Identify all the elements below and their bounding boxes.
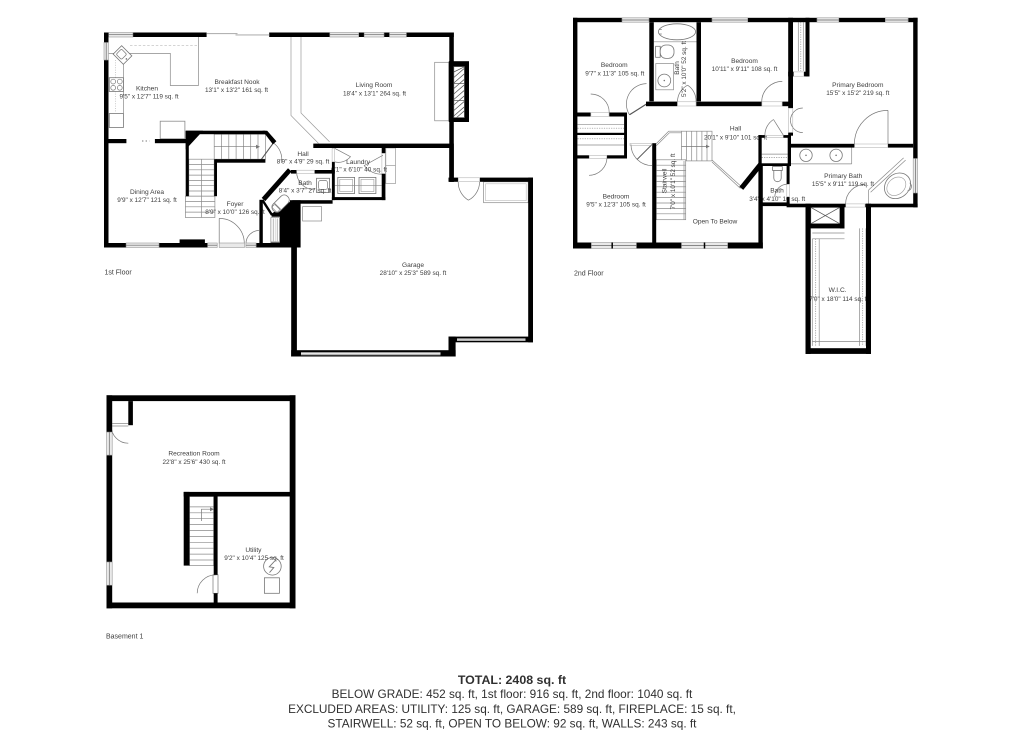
svg-text:6'1" x 6'10" 40 sq. ft: 6'1" x 6'10" 40 sq. ft: [331, 167, 387, 174]
svg-text:Bedroom: Bedroom: [731, 58, 758, 65]
svg-text:Bath: Bath: [674, 61, 681, 75]
svg-text:BELOW GRADE: 452 sq. ft, 1st f: BELOW GRADE: 452 sq. ft, 1st floor: 916 …: [332, 687, 693, 701]
svg-text:9'9" x 12'7" 121 sq. ft: 9'9" x 12'7" 121 sq. ft: [117, 197, 177, 204]
svg-text:W.I.C.: W.I.C.: [829, 287, 847, 294]
svg-text:8'9" x 10'0" 126 sq. ft: 8'9" x 10'0" 126 sq. ft: [205, 209, 265, 216]
svg-text:Foyer: Foyer: [227, 201, 245, 208]
svg-text:STAIRWELL: 52 sq. ft, OPEN TO: STAIRWELL: 52 sq. ft, OPEN TO BELOW: 92 …: [328, 716, 698, 730]
svg-text:Basement 1: Basement 1: [106, 634, 143, 641]
svg-text:Living Room: Living Room: [356, 82, 393, 89]
svg-text:20'1" x 9'10" 101 sq. ft: 20'1" x 9'10" 101 sq. ft: [704, 134, 767, 141]
svg-text:13'1" x 13'2" 161 sq. ft: 13'1" x 13'2" 161 sq. ft: [205, 87, 268, 94]
svg-text:15'5" x 9'11" 119 sq. ft: 15'5" x 9'11" 119 sq. ft: [812, 181, 874, 188]
svg-text:9'7" x 11'3" 105 sq. ft: 9'7" x 11'3" 105 sq. ft: [585, 70, 644, 77]
svg-text:Bedroom: Bedroom: [603, 193, 630, 200]
svg-text:Primary Bedroom: Primary Bedroom: [832, 82, 884, 89]
svg-text:Bedroom: Bedroom: [601, 62, 628, 69]
svg-text:8'4" x 3'7" 27 sq. ft: 8'4" x 3'7" 27 sq. ft: [279, 187, 332, 194]
svg-text:7'0" x 18'0" 114 sq. ft: 7'0" x 18'0" 114 sq. ft: [809, 296, 868, 303]
svg-text:Open To Below: Open To Below: [693, 218, 738, 225]
svg-text:Hall: Hall: [297, 151, 309, 158]
svg-text:Stairwell: Stairwell: [662, 168, 669, 193]
svg-text:5'2" x 10'0" 52 sq. ft: 5'2" x 10'0" 52 sq. ft: [681, 41, 688, 97]
svg-text:3'4" x 4'10" 16 sq. ft: 3'4" x 4'10" 16 sq. ft: [749, 196, 805, 203]
svg-text:9'2" x 10'4" 125 sq. ft: 9'2" x 10'4" 125 sq. ft: [224, 555, 284, 562]
svg-text:Bath: Bath: [298, 180, 312, 187]
svg-text:15'5" x 15'2" 219 sq. ft: 15'5" x 15'2" 219 sq. ft: [826, 90, 889, 97]
svg-text:10'11" x 9'11" 108 sq. ft: 10'11" x 9'11" 108 sq. ft: [712, 66, 778, 73]
svg-text:1st Floor: 1st Floor: [105, 270, 133, 277]
svg-text:28'10" x 25'3" 589 sq. ft: 28'10" x 25'3" 589 sq. ft: [380, 270, 447, 277]
svg-text:Breakfast Nook: Breakfast Nook: [214, 79, 260, 86]
svg-text:9'5" x 12'3" 105 sq. ft: 9'5" x 12'3" 105 sq. ft: [586, 202, 646, 209]
svg-text:Bath: Bath: [770, 187, 784, 194]
svg-text:9'5" x 12'7" 119 sq. ft: 9'5" x 12'7" 119 sq. ft: [119, 93, 178, 100]
svg-text:Laundry: Laundry: [346, 159, 371, 166]
svg-text:EXCLUDED AREAS: UTILITY: 125 s: EXCLUDED AREAS: UTILITY: 125 sq. ft, GAR…: [288, 702, 736, 716]
svg-text:22'8" x 25'6" 430 sq. ft: 22'8" x 25'6" 430 sq. ft: [162, 459, 225, 466]
svg-text:8'9" x 4'9" 29 sq. ft: 8'9" x 4'9" 29 sq. ft: [277, 159, 330, 166]
svg-text:18'4" x 13'1" 264 sq. ft: 18'4" x 13'1" 264 sq. ft: [343, 91, 406, 98]
svg-text:TOTAL: 2408 sq. ft: TOTAL: 2408 sq. ft: [458, 673, 566, 687]
svg-text:Primary Bath: Primary Bath: [824, 173, 862, 180]
svg-text:Kitchen: Kitchen: [136, 86, 158, 93]
svg-text:Recreation Room: Recreation Room: [168, 450, 220, 457]
svg-text:2nd Floor: 2nd Floor: [574, 271, 604, 278]
svg-text:Dining Area: Dining Area: [130, 189, 164, 196]
svg-text:Garage: Garage: [402, 262, 424, 269]
svg-text:7'0" x 10'1" 52 sq. ft: 7'0" x 10'1" 52 sq. ft: [670, 153, 677, 209]
svg-text:Hall: Hall: [730, 125, 742, 132]
svg-text:Utility: Utility: [245, 547, 262, 554]
